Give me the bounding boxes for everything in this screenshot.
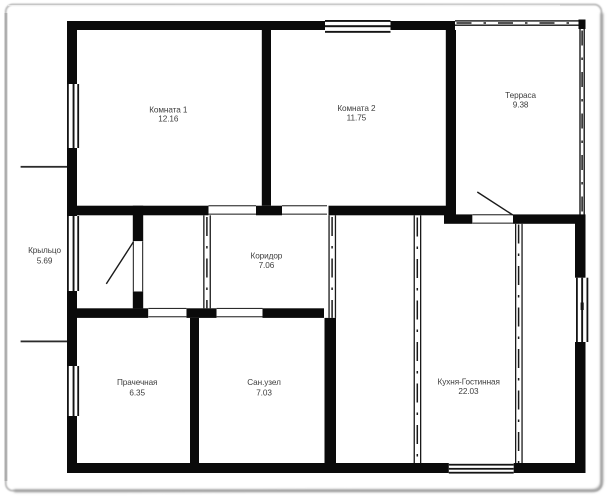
svg-text:Комната 2: Комната 2 (337, 104, 376, 113)
svg-text:6.35: 6.35 (129, 388, 145, 397)
svg-text:9.38: 9.38 (513, 101, 529, 110)
svg-text:Комната 1: Комната 1 (149, 105, 188, 114)
svg-text:7.03: 7.03 (256, 388, 272, 397)
svg-text:Терраса: Терраса (505, 91, 536, 100)
svg-text:Сан.узел: Сан.узел (247, 378, 281, 387)
svg-text:12.16: 12.16 (158, 115, 179, 124)
svg-text:11.75: 11.75 (347, 113, 367, 122)
svg-text:Кухня-Гостинная: Кухня-Гостинная (438, 377, 500, 386)
svg-text:7.06: 7.06 (259, 261, 275, 270)
svg-text:22.03: 22.03 (458, 387, 479, 396)
svg-text:5.69: 5.69 (37, 257, 53, 266)
svg-text:Крыльцо: Крыльцо (28, 246, 61, 255)
svg-text:Коридор: Коридор (251, 251, 283, 260)
svg-text:Прачечная: Прачечная (117, 378, 157, 387)
